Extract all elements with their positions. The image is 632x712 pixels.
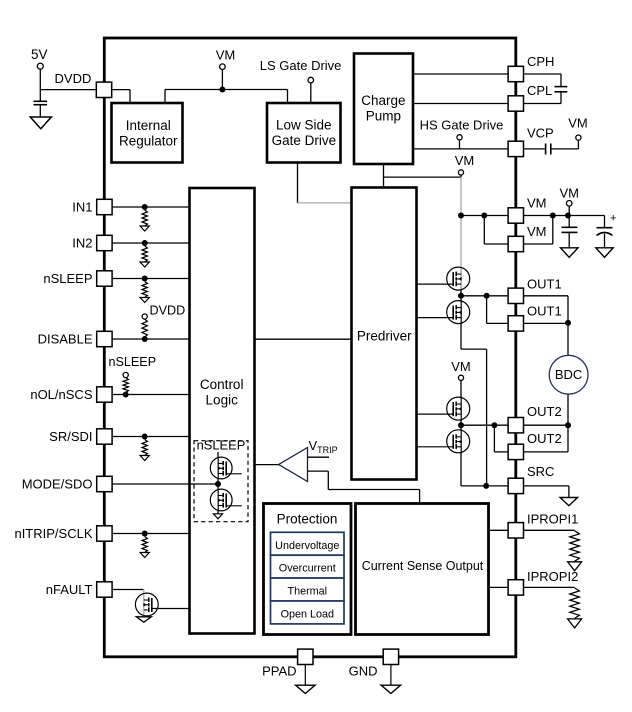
svg-text:VM: VM [216, 48, 236, 63]
svg-text:nSLEEP: nSLEEP [43, 271, 92, 286]
svg-text:Predriver: Predriver [357, 328, 412, 343]
svg-text:Gate Drive: Gate Drive [272, 133, 337, 148]
svg-text:PPAD: PPAD [262, 664, 296, 679]
svg-text:Thermal: Thermal [287, 586, 327, 598]
svg-text:Low Side: Low Side [276, 117, 332, 132]
svg-text:IN1: IN1 [72, 199, 92, 214]
svg-text:VCP: VCP [527, 126, 554, 141]
svg-text:OUT2: OUT2 [527, 431, 562, 446]
svg-text:nSLEEP: nSLEEP [109, 355, 157, 369]
svg-text:CPH: CPH [527, 54, 554, 69]
svg-text:Internal: Internal [126, 118, 171, 133]
svg-text:GND: GND [349, 664, 378, 679]
svg-text:BDC: BDC [555, 367, 582, 382]
svg-text:VM: VM [451, 359, 471, 374]
svg-text:nSLEEP: nSLEEP [197, 437, 246, 452]
svg-text:+: + [610, 213, 616, 225]
svg-text:OUT2: OUT2 [527, 404, 562, 419]
svg-text:DVDD: DVDD [55, 71, 92, 86]
svg-text:VM: VM [559, 186, 579, 201]
svg-text:DISABLE: DISABLE [38, 331, 93, 346]
svg-text:DVDD: DVDD [150, 304, 186, 318]
svg-text:Pump: Pump [366, 108, 401, 123]
svg-text:IPROPI2: IPROPI2 [527, 569, 578, 584]
svg-text:5V: 5V [31, 47, 48, 62]
svg-text:MODE/SDO: MODE/SDO [22, 476, 93, 491]
svg-text:Overcurrent: Overcurrent [279, 563, 336, 575]
svg-text:VM: VM [568, 116, 588, 131]
svg-text:Open Load: Open Load [281, 609, 334, 621]
svg-text:OUT1: OUT1 [527, 304, 562, 319]
svg-text:SR/SDI: SR/SDI [49, 429, 92, 444]
svg-text:Control: Control [200, 377, 244, 392]
svg-text:IN2: IN2 [72, 235, 92, 250]
svg-text:LS Gate Drive: LS Gate Drive [260, 58, 342, 73]
svg-text:VM: VM [455, 153, 475, 168]
svg-text:VM: VM [527, 224, 547, 239]
svg-text:Charge: Charge [361, 93, 405, 108]
svg-text:Logic: Logic [206, 393, 239, 408]
svg-text:nFAULT: nFAULT [46, 582, 93, 597]
svg-text:nITRIP/SCLK: nITRIP/SCLK [14, 526, 92, 541]
svg-text:nOL/nSCS: nOL/nSCS [30, 387, 92, 402]
svg-text:IPROPI1: IPROPI1 [527, 512, 578, 527]
svg-text:Undervoltage: Undervoltage [275, 540, 339, 552]
svg-text:HS Gate Drive: HS Gate Drive [420, 118, 504, 133]
svg-text:OUT1: OUT1 [527, 276, 562, 291]
svg-text:Regulator: Regulator [119, 133, 178, 148]
svg-text:CPL: CPL [527, 83, 552, 98]
svg-text:VM: VM [527, 196, 547, 211]
svg-text:Current Sense Output: Current Sense Output [362, 559, 484, 573]
svg-text:SRC: SRC [527, 464, 554, 479]
svg-text:Protection: Protection [277, 511, 338, 526]
